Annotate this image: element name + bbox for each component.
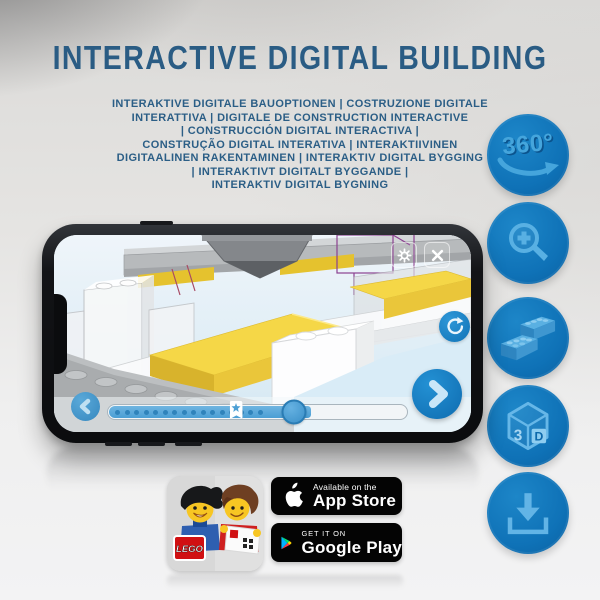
app-store-name: App Store	[313, 492, 396, 510]
volume-down-button	[175, 442, 202, 446]
progress-dot	[210, 410, 215, 415]
subtitle-line: INTERAKTIV DIGITAL BYGNING	[75, 179, 525, 193]
star-icon	[232, 403, 241, 412]
feature-circle-3d: 3 D	[487, 385, 569, 467]
subtitle-line: CONSTRUÇÃO DIGITAL INTERATIVA | INTERAKT…	[75, 139, 525, 153]
feature-circle-bricks	[487, 297, 569, 379]
progress-handle[interactable]	[281, 400, 306, 425]
marketing-graphic: INTERACTIVE DIGITAL BUILDING INTERAKTIVE…	[0, 0, 600, 600]
progress-dot	[248, 410, 253, 415]
apple-icon	[281, 482, 304, 510]
progress-dot	[172, 410, 177, 415]
chevron-left-icon	[71, 392, 100, 421]
progress-dot	[201, 410, 206, 415]
subtitle-line: INTERAKTIVE DIGITALE BAUOPTIONEN | COSTR…	[75, 98, 525, 112]
google-play-badge[interactable]: GET IT ON Google Play	[271, 523, 402, 562]
360-rotation-icon: 360°	[487, 114, 569, 196]
page-title: INTERACTIVE DIGITAL BUILDING	[15, 40, 585, 78]
phone-notch	[54, 294, 67, 374]
lego-logo: LEGO	[174, 536, 205, 560]
gear-icon	[396, 247, 413, 264]
google-play-icon	[281, 530, 293, 556]
curved-arrow-icon	[495, 154, 561, 180]
subtitle-line: | INTERAKTIVT DIGITALT BYGGANDE |	[75, 166, 525, 180]
lego-bricks-icon	[499, 309, 557, 367]
rotate-view-button[interactable]	[439, 311, 470, 342]
rotate-icon	[443, 315, 466, 338]
progress-dot	[134, 410, 139, 415]
settings-button[interactable]	[391, 242, 417, 268]
phone-mockup	[42, 224, 483, 443]
progress-dot	[115, 410, 120, 415]
previous-step-button[interactable]	[71, 392, 100, 421]
close-icon	[430, 248, 445, 263]
cube-3-label: 3	[514, 428, 523, 445]
next-step-button[interactable]	[412, 369, 462, 419]
progress-dot	[182, 410, 187, 415]
subtitle-line: | CONSTRUCCIÓN DIGITAL INTERACTIVA |	[75, 125, 525, 139]
progress-dot	[163, 410, 168, 415]
progress-dot	[144, 410, 149, 415]
app-store-badge[interactable]: Available on the App Store	[271, 477, 402, 515]
bottom-row-reflection	[167, 575, 403, 588]
progress-dot	[220, 410, 225, 415]
3d-cube-icon: 3 D	[499, 397, 557, 455]
progress-dot	[258, 410, 263, 415]
progress-dot	[191, 410, 196, 415]
google-play-name: Google Play	[302, 539, 402, 557]
progress-dot	[153, 410, 158, 415]
lego-app-icon: LEGO	[167, 476, 263, 571]
qr-card	[220, 525, 261, 554]
download-icon	[501, 486, 555, 540]
build-progress-bar[interactable]	[107, 404, 408, 420]
chevron-right-icon	[412, 369, 462, 419]
feature-circle-zoom	[487, 202, 569, 284]
google-play-tagline: GET IT ON	[302, 529, 402, 539]
close-button[interactable]	[424, 242, 450, 268]
volume-up-button	[138, 442, 165, 446]
feature-circle-360: 360°	[487, 114, 569, 196]
progress-dot	[125, 410, 130, 415]
lego-logo-text: LEGO	[176, 544, 204, 555]
lego-app-artwork: LEGO	[167, 476, 263, 571]
mute-switch	[105, 442, 132, 446]
zoom-in-magnifier-icon	[502, 217, 554, 269]
power-button	[140, 221, 173, 225]
subtitle-line: DIGITAALINEN RAKENTAMINEN | INTERAKTIV D…	[75, 152, 525, 166]
cube-d-label: D	[534, 430, 543, 444]
building-app-screen	[54, 235, 471, 432]
subtitle-line: INTERATTIVA | DIGITALE DE CONSTRUCTION I…	[75, 112, 525, 126]
feature-circle-download	[487, 472, 569, 554]
multilingual-subtitle: INTERAKTIVE DIGITALE BAUOPTIONEN | COSTR…	[75, 98, 525, 193]
